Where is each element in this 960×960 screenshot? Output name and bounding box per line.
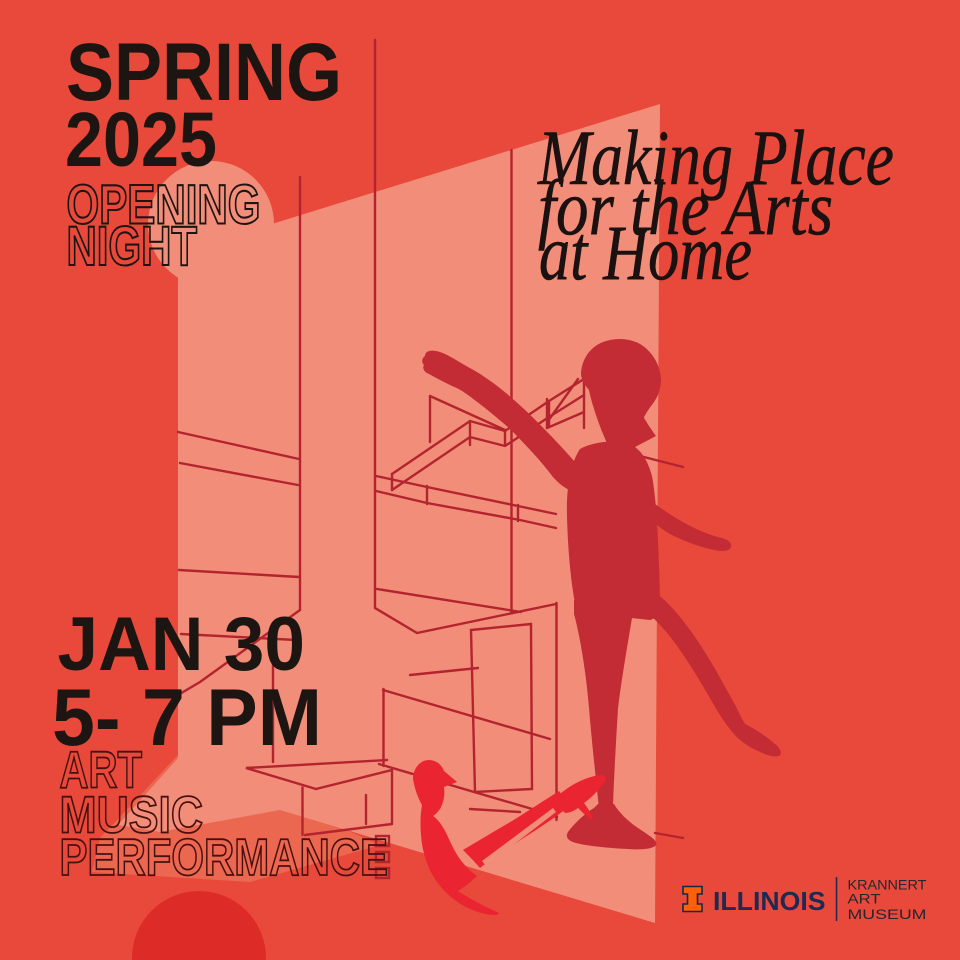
svg-text:NIGHT: NIGHT [67, 215, 198, 277]
svg-text:MUSEUM: MUSEUM [848, 906, 927, 922]
svg-text:ART: ART [848, 891, 882, 907]
svg-text:at Home: at Home [539, 209, 752, 296]
svg-text:ILLINOIS: ILLINOIS [713, 886, 826, 916]
svg-text:2025: 2025 [65, 97, 217, 183]
svg-text:PERFORMANCE: PERFORMANCE [60, 829, 389, 887]
